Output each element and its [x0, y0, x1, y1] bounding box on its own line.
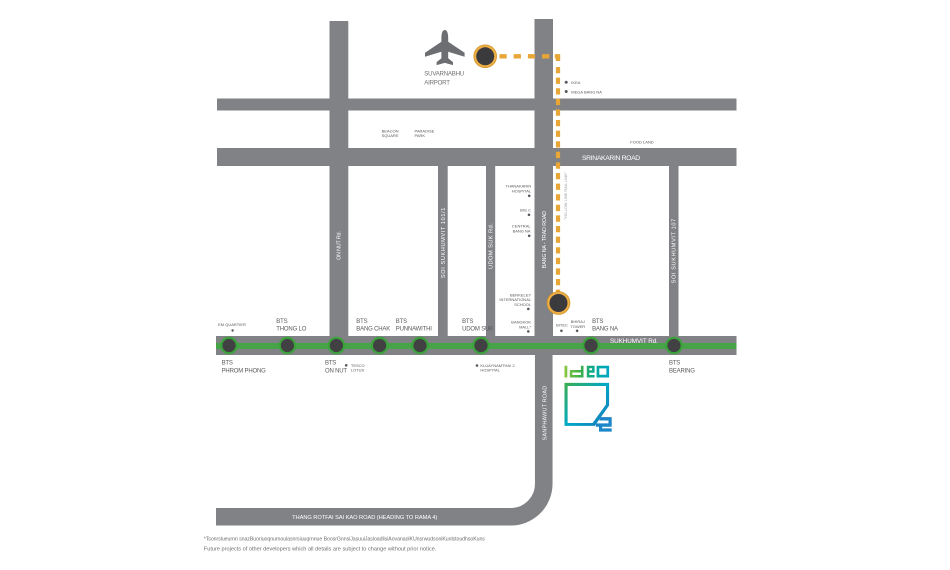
svg-text:THANG ROTFAI SAI KAO ROAD (HEA: THANG ROTFAI SAI KAO ROAD (HEADING TO RA… — [292, 515, 437, 521]
svg-text:BANG NA: BANG NA — [592, 327, 618, 333]
svg-text:SUVARNABHU: SUVARNABHU — [424, 70, 464, 77]
svg-text:HOSPITAL: HOSPITAL — [512, 188, 532, 193]
svg-text:UDOM SUK Rd.: UDOM SUK Rd. — [488, 223, 494, 269]
svg-text:MALL*: MALL* — [519, 324, 531, 329]
svg-text:SQUARE: SQUARE — [382, 133, 399, 138]
svg-text:PUNNAWITHI: PUNNAWITHI — [396, 327, 432, 333]
svg-text:BTS: BTS — [222, 361, 233, 367]
svg-text:HOSPITAL: HOSPITAL — [480, 368, 500, 373]
svg-text:BTS: BTS — [396, 319, 407, 325]
svg-text:Future projects of other devel: Future projects of other developers whic… — [204, 546, 437, 552]
svg-text:SCHOOL: SCHOOL — [514, 302, 532, 307]
svg-text:IKEA: IKEA — [571, 80, 580, 85]
svg-text:BTS: BTS — [462, 319, 473, 325]
svg-text:BANG NA - TRAD ROAD: BANG NA - TRAD ROAD — [542, 211, 548, 268]
svg-text:BTS: BTS — [592, 319, 603, 325]
svg-text:ON NUT: ON NUT — [325, 368, 347, 374]
svg-text:BTS: BTS — [669, 361, 680, 367]
svg-text:LOTUS: LOTUS — [351, 368, 365, 373]
svg-text:SOI SUKHUMVIT 107: SOI SUKHUMVIT 107 — [672, 218, 678, 283]
svg-text:*Tsonrslueurnn snazBuoriuoqnur: *Tsonrslueurnn snazBuoriuoqnurnoulasnrsi… — [204, 537, 485, 543]
svg-text:PARK: PARK — [415, 133, 426, 138]
svg-text:BANG NA: BANG NA — [513, 228, 531, 233]
svg-text:BIG C: BIG C — [520, 207, 531, 212]
svg-text:PHROM PHONG: PHROM PHONG — [222, 368, 267, 374]
svg-text:BITEC: BITEC — [556, 323, 568, 328]
svg-text:BANG CHAK: BANG CHAK — [356, 327, 390, 333]
svg-text:SUKHUMVIT Rd.: SUKHUMVIT Rd. — [610, 338, 658, 345]
svg-text:ON NUT Rd.: ON NUT Rd. — [337, 231, 343, 260]
svg-text:BTS: BTS — [325, 361, 336, 367]
svg-text:THONG LO: THONG LO — [276, 327, 306, 333]
svg-text:SOI SUKHUMVIT 101/1: SOI SUKHUMVIT 101/1 — [441, 207, 447, 278]
svg-text:"YELLOW LINE RAIL LINK": "YELLOW LINE RAIL LINK" — [563, 171, 568, 220]
svg-text:EM QUARTIER: EM QUARTIER — [218, 322, 246, 327]
svg-text:BTS: BTS — [356, 319, 367, 325]
svg-text:BTS: BTS — [276, 319, 287, 325]
svg-text:FOOD LAND: FOOD LAND — [630, 140, 653, 145]
svg-text:SRINAKARIN ROAD: SRINAKARIN ROAD — [582, 155, 640, 162]
svg-text:SANPHAWUT ROAD: SANPHAWUT ROAD — [542, 386, 548, 441]
svg-text:AIRPORT: AIRPORT — [424, 80, 450, 87]
svg-text:TOWER: TOWER — [570, 324, 585, 329]
svg-text:UDOM SUK: UDOM SUK — [462, 327, 493, 333]
svg-text:BEARING: BEARING — [669, 368, 695, 374]
svg-text:MEGA BANG NA: MEGA BANG NA — [571, 90, 602, 95]
